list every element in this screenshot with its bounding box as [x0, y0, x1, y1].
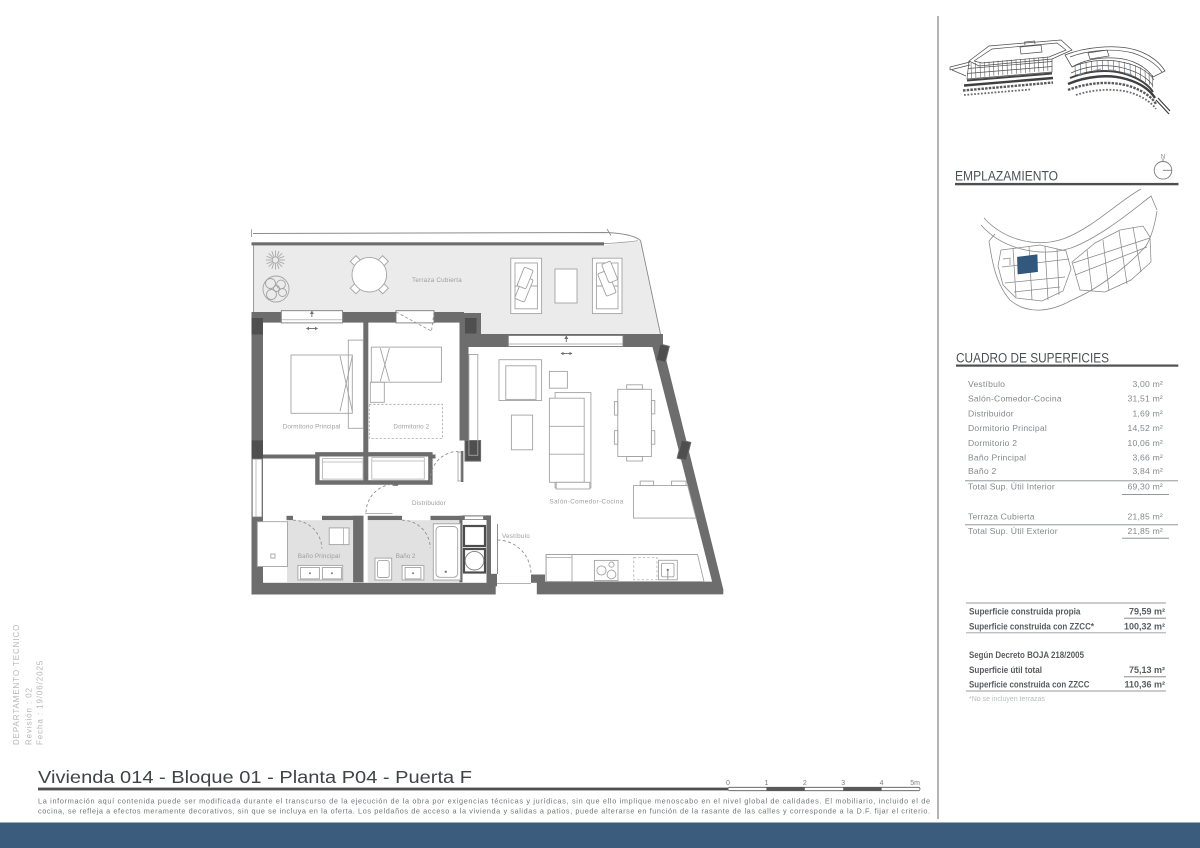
svg-text:Revisión : 02: Revisión : 02	[25, 687, 34, 745]
svg-text:Superficie útil total: Superficie útil total	[969, 665, 1042, 675]
svg-text:Distribuidor: Distribuidor	[412, 500, 446, 507]
svg-text:2: 2	[803, 780, 807, 787]
svg-text:0: 0	[726, 780, 730, 787]
svg-text:75,13 m²: 75,13 m²	[1129, 665, 1165, 675]
svg-text:Terraza Cubierta: Terraza Cubierta	[412, 277, 462, 284]
svg-text:cocina, se refleja a efectos m: cocina, se refleja a efectos meramente d…	[38, 807, 930, 816]
svg-text:1: 1	[764, 780, 768, 787]
svg-text:Vestíbulo: Vestíbulo	[502, 533, 530, 540]
svg-text:3,66 m²: 3,66 m²	[1132, 453, 1163, 463]
svg-text:3: 3	[841, 780, 845, 787]
svg-text:79,59 m²: 79,59 m²	[1129, 607, 1165, 617]
svg-text:Dormitorio Principal: Dormitorio Principal	[283, 424, 341, 431]
svg-text:Terraza Cubierta: Terraza Cubierta	[968, 512, 1035, 522]
svg-text:Distribuidor: Distribuidor	[968, 408, 1014, 418]
svg-text:31,51 m²: 31,51 m²	[1127, 394, 1163, 404]
svg-text:CUADRO DE SUPERFICIES: CUADRO DE SUPERFICIES	[956, 351, 1109, 366]
svg-text:21,85 m²: 21,85 m²	[1127, 512, 1163, 522]
svg-text:Baño Principal: Baño Principal	[968, 453, 1026, 463]
svg-text:Dormitorio 2: Dormitorio 2	[968, 438, 1017, 448]
svg-text:Total Sup. Útil Exterior: Total Sup. Útil Exterior	[968, 526, 1058, 536]
svg-text:Superficie construida propia: Superficie construida propia	[969, 607, 1081, 617]
svg-text:5m: 5m	[910, 780, 920, 787]
svg-text:Baño 2: Baño 2	[968, 466, 996, 476]
svg-text:Dormitorio 2: Dormitorio 2	[393, 424, 429, 431]
svg-text:21,85 m²: 21,85 m²	[1127, 526, 1163, 536]
svg-text:Salón-Comedor-Cocina: Salón-Comedor-Cocina	[550, 499, 624, 506]
svg-text:14,52 m²: 14,52 m²	[1127, 423, 1163, 433]
svg-text:1,69 m²: 1,69 m²	[1132, 408, 1163, 418]
svg-text:Baño Principal: Baño Principal	[298, 553, 341, 560]
svg-text:3,00 m²: 3,00 m²	[1132, 379, 1163, 389]
svg-text:10,06 m²: 10,06 m²	[1127, 438, 1163, 448]
svg-text:La información aquí contenida: La información aquí contenida puede ser …	[38, 797, 930, 806]
svg-text:100,32 m²: 100,32 m²	[1124, 622, 1165, 632]
svg-text:Baño 2: Baño 2	[396, 553, 416, 560]
svg-text:Superficie construida con ZZCC: Superficie construida con ZZCC*	[969, 622, 1094, 632]
svg-text:4: 4	[880, 780, 884, 787]
svg-text:3,84 m²: 3,84 m²	[1132, 466, 1163, 476]
svg-text:Fecha : 19/06/2025: Fecha : 19/06/2025	[36, 660, 45, 745]
svg-text:N: N	[1161, 154, 1166, 161]
svg-text:Vestíbulo: Vestíbulo	[968, 379, 1005, 389]
svg-text:Según Decreto BOJA 218/2005: Según Decreto BOJA 218/2005	[969, 650, 1084, 660]
svg-text:EMPLAZAMIENTO: EMPLAZAMIENTO	[955, 169, 1058, 184]
svg-text:Dormitorio Principal: Dormitorio Principal	[968, 423, 1047, 433]
svg-text:Total Sup. Útil Interior: Total Sup. Útil Interior	[968, 482, 1055, 492]
svg-text:DEPARTAMENTO TECNICO: DEPARTAMENTO TECNICO	[12, 624, 21, 745]
svg-text:69,30 m²: 69,30 m²	[1127, 482, 1163, 492]
svg-text:Salón-Comedor-Cocina: Salón-Comedor-Cocina	[968, 394, 1062, 404]
svg-text:110,36 m²: 110,36 m²	[1124, 680, 1165, 690]
svg-text:Vivienda 014 - Bloque 01 - Pla: Vivienda 014 - Bloque 01 - Planta P04 - …	[38, 767, 472, 787]
svg-text:*No se incluyen terrazas: *No se incluyen terrazas	[969, 696, 1045, 703]
svg-text:Superficie construida con ZZCC: Superficie construida con ZZCC	[969, 680, 1090, 690]
